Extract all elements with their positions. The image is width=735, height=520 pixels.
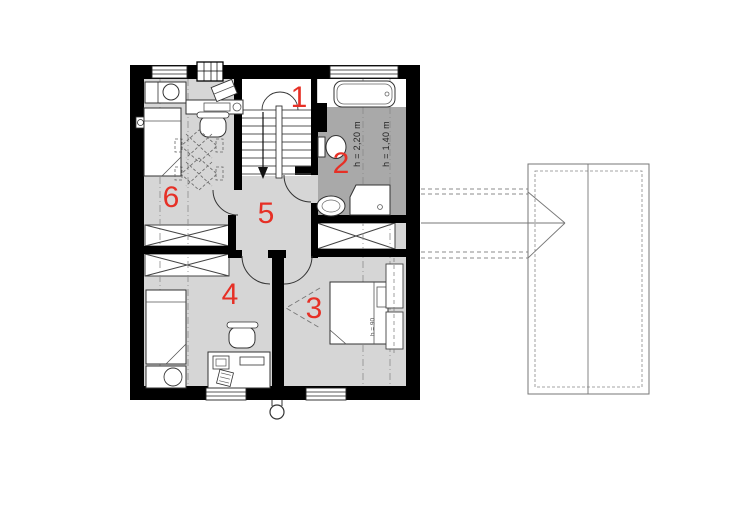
window-top-left bbox=[152, 66, 187, 78]
room-label-1: 1 bbox=[291, 83, 308, 113]
bath-height-annotation-2: h = 1,40 m bbox=[381, 121, 391, 167]
chair-room6 bbox=[197, 112, 229, 137]
bedroom-height-annotation: h = 90 bbox=[370, 318, 377, 336]
chimney bbox=[197, 62, 223, 81]
rain-pipe bbox=[270, 400, 284, 419]
bed-room6 bbox=[144, 108, 181, 176]
window-bottom-left bbox=[206, 388, 246, 400]
room-label-2: 2 bbox=[333, 149, 350, 179]
nightstand-room4 bbox=[146, 366, 186, 388]
bed-room4 bbox=[146, 290, 186, 364]
window-top-right bbox=[330, 66, 398, 78]
room-label-6: 6 bbox=[163, 183, 180, 213]
desk-room4 bbox=[208, 352, 270, 388]
chair-room4 bbox=[227, 322, 258, 348]
bed-room3 bbox=[330, 282, 388, 344]
garage-roof-plan bbox=[421, 164, 649, 394]
bathtub bbox=[334, 81, 395, 107]
laundry-counter bbox=[145, 82, 186, 103]
floor-plan-drawing bbox=[0, 0, 735, 520]
shower bbox=[350, 185, 390, 215]
window-bottom-right bbox=[306, 388, 346, 400]
room-label-3: 3 bbox=[306, 294, 323, 324]
wardrobe-room3 bbox=[386, 258, 403, 354]
floor-plan-canvas: 1 2 3 4 5 6 h = 2,20 m h = 1,40 m h = 90 bbox=[0, 0, 735, 520]
room-label-5: 5 bbox=[258, 199, 275, 229]
room-label-4: 4 bbox=[222, 280, 239, 310]
bath-height-annotation-1: h = 2,20 m bbox=[352, 121, 362, 167]
bathroom-sink bbox=[317, 196, 345, 216]
